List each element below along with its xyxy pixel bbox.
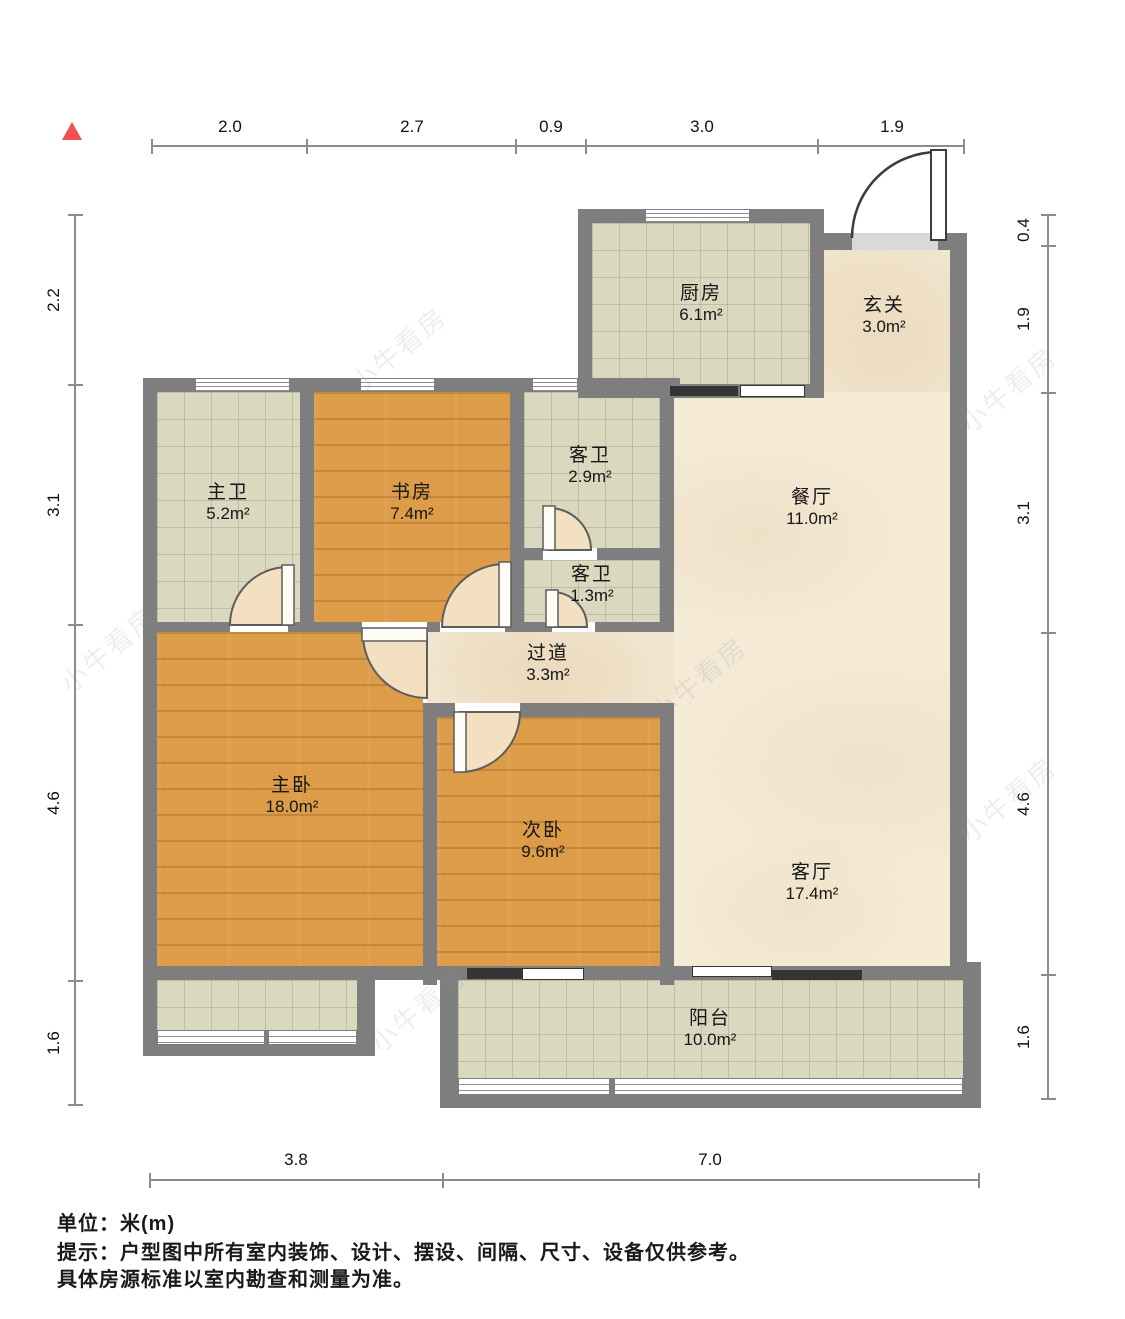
room-area: 1.3m²: [570, 586, 613, 606]
room-name: 书房: [390, 482, 433, 504]
room-name: 客卫: [568, 445, 611, 467]
room-area: 9.6m²: [521, 842, 564, 862]
room-name: 玄关: [862, 295, 905, 317]
room-area: 3.3m²: [526, 665, 569, 685]
room-area: 5.2m²: [206, 504, 249, 524]
room-name: 次卧: [521, 820, 564, 842]
master-bath-door: [230, 565, 294, 625]
room-name: 客厅: [786, 862, 839, 884]
room-label-balcony: 阳台 10.0m²: [684, 1008, 737, 1050]
room-name: 厨房: [679, 283, 722, 305]
study-door: [442, 562, 511, 627]
room-label-guest-bath-2: 客卫 1.3m²: [570, 564, 613, 606]
room-label-entry: 玄关 3.0m²: [862, 295, 905, 337]
room-label-master-bath: 主卫 5.2m²: [206, 482, 249, 524]
room-area: 18.0m²: [266, 797, 319, 817]
room-label-study: 书房 7.4m²: [390, 482, 433, 524]
room-label-second-bedroom: 次卧 9.6m²: [521, 820, 564, 862]
room-name: 主卫: [206, 482, 249, 504]
floor-plan-canvas: 厨房 6.1m² 玄关 3.0m² 主卫 5.2m² 书房 7.4m² 客卫 2…: [0, 0, 1125, 1319]
room-area: 3.0m²: [862, 317, 905, 337]
room-label-hallway: 过道 3.3m²: [526, 643, 569, 685]
room-area: 17.4m²: [786, 884, 839, 904]
entry-door: [852, 150, 946, 240]
room-label-dining-room: 餐厅 11.0m²: [786, 487, 838, 529]
room-area: 6.1m²: [679, 305, 722, 325]
room-label-guest-bath-1: 客卫 2.9m²: [568, 445, 611, 487]
master-bedroom-door: [362, 628, 427, 698]
room-area: 10.0m²: [684, 1030, 737, 1050]
room-area: 11.0m²: [786, 509, 838, 529]
room-name: 餐厅: [786, 487, 838, 509]
room-label-master-bedroom: 主卧 18.0m²: [266, 775, 319, 817]
room-name: 客卫: [570, 564, 613, 586]
room-name: 过道: [526, 643, 569, 665]
room-label-kitchen: 厨房 6.1m²: [679, 283, 722, 325]
room-label-living-room: 客厅 17.4m²: [786, 862, 839, 904]
room-area: 7.4m²: [390, 504, 433, 524]
room-name: 阳台: [684, 1008, 737, 1030]
room-name: 主卧: [266, 775, 319, 797]
room-area: 2.9m²: [568, 467, 611, 487]
second-bedroom-door: [454, 712, 520, 772]
guest-bath-1-door: [543, 506, 591, 550]
